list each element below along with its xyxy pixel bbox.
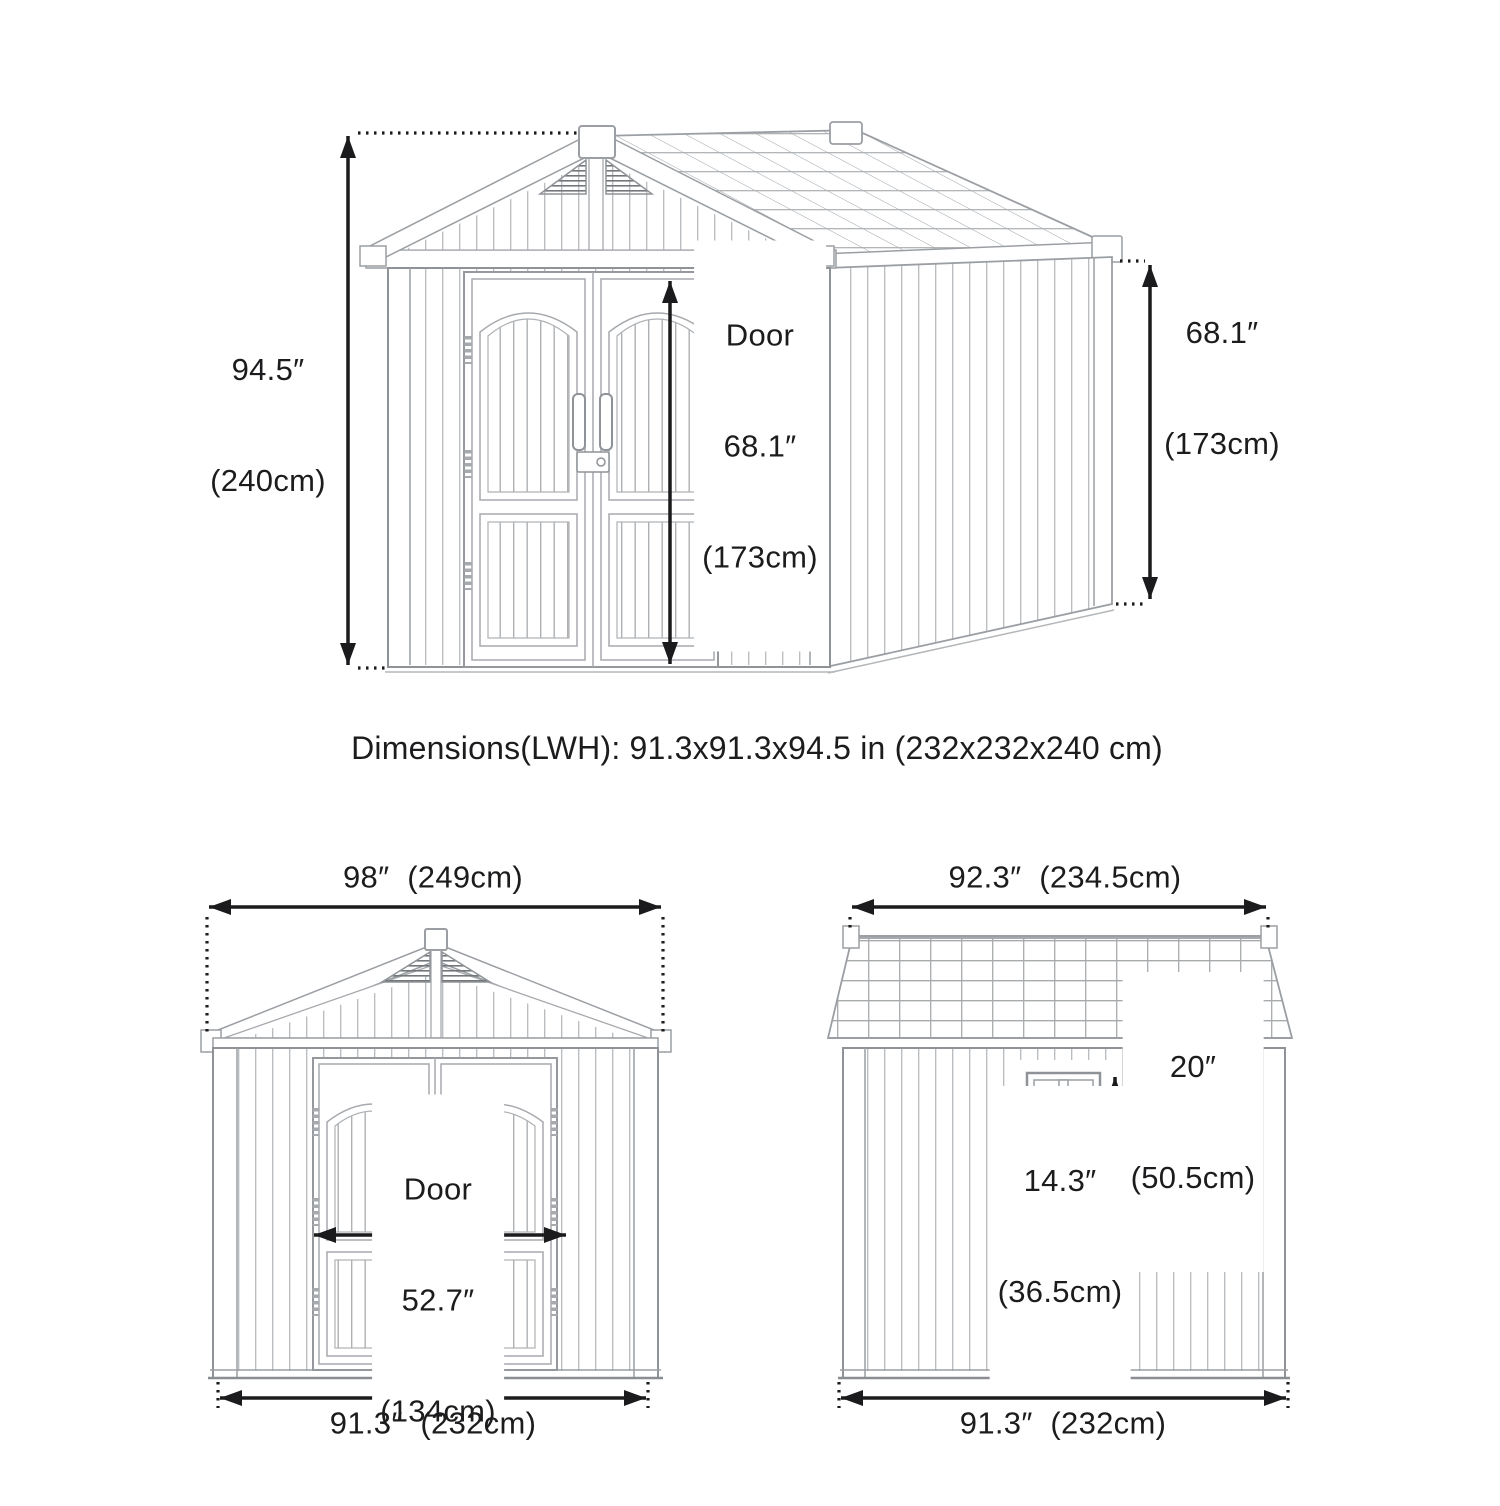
dimensions-summary: Dimensions(LWH): 91.3x91.3x94.5 in (232x…: [351, 728, 1163, 768]
front-base-width-label: 91.3″ (232cm): [322, 1403, 544, 1444]
perspective-height-metric: (240cm): [210, 462, 326, 499]
front-door-label: Door 52.7″ (134cm): [372, 1095, 504, 1506]
side-window-width-label: 14.3″ (36.5cm): [990, 1086, 1131, 1386]
perspective-door-label: Door 68.1″ (173cm): [694, 241, 826, 652]
perspective-door-metric: (173cm): [702, 539, 818, 576]
side-base-width-label: 91.3″ (232cm): [952, 1403, 1174, 1444]
side-window-width-value: 14.3″: [998, 1162, 1123, 1199]
perspective-door-name: Door: [702, 317, 818, 354]
shed-dimension-diagram: 94.5″ (240cm) Door 68.1″ (173cm) 68.1″ (…: [0, 0, 1500, 1500]
perspective-side-height-value: 68.1″: [1164, 314, 1280, 351]
side-window-height-value: 20″: [1131, 1048, 1256, 1085]
perspective-height-value: 94.5″: [210, 351, 326, 388]
side-window-width-metric: (36.5cm): [998, 1273, 1123, 1310]
side-window-height-label: 20″ (50.5cm): [1123, 972, 1264, 1272]
front-door-name: Door: [380, 1171, 496, 1208]
perspective-side-height-label: 68.1″ (173cm): [1156, 238, 1288, 538]
perspective-door-value: 68.1″: [702, 428, 818, 465]
side-overall-width-label: 92.3″ (234.5cm): [941, 857, 1190, 898]
perspective-height-label: 94.5″ (240cm): [202, 275, 334, 575]
front-overall-width-label: 98″ (249cm): [335, 857, 531, 898]
perspective-side-height-metric: (173cm): [1164, 425, 1280, 462]
side-window-height-metric: (50.5cm): [1131, 1159, 1256, 1196]
front-door-value: 52.7″: [380, 1282, 496, 1319]
